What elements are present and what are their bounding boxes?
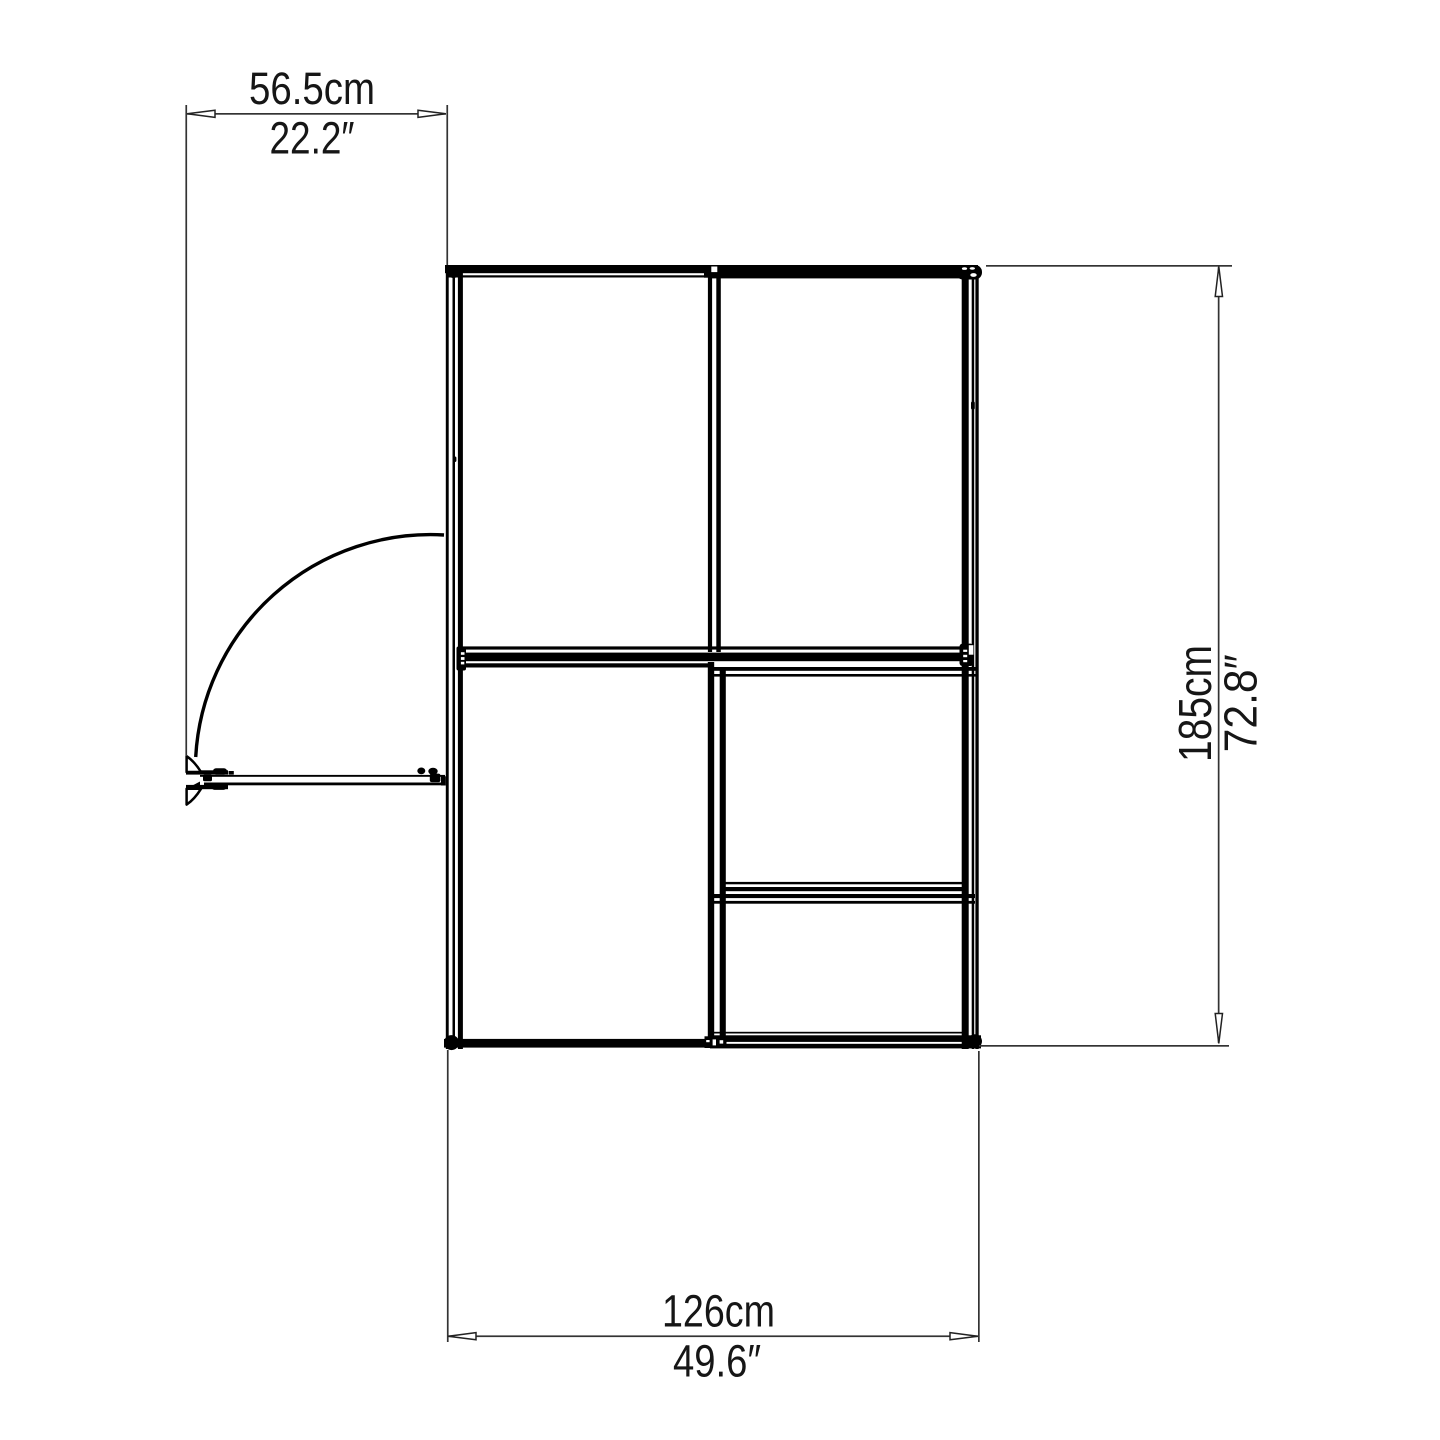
svg-text:126cm: 126cm [662,1286,775,1337]
svg-text:22.2″: 22.2″ [270,113,355,164]
svg-text:185cm: 185cm [1169,645,1221,762]
svg-text:49.6″: 49.6″ [673,1336,761,1387]
svg-text:56.5cm: 56.5cm [249,63,375,114]
svg-text:72.8″: 72.8″ [1215,654,1267,752]
